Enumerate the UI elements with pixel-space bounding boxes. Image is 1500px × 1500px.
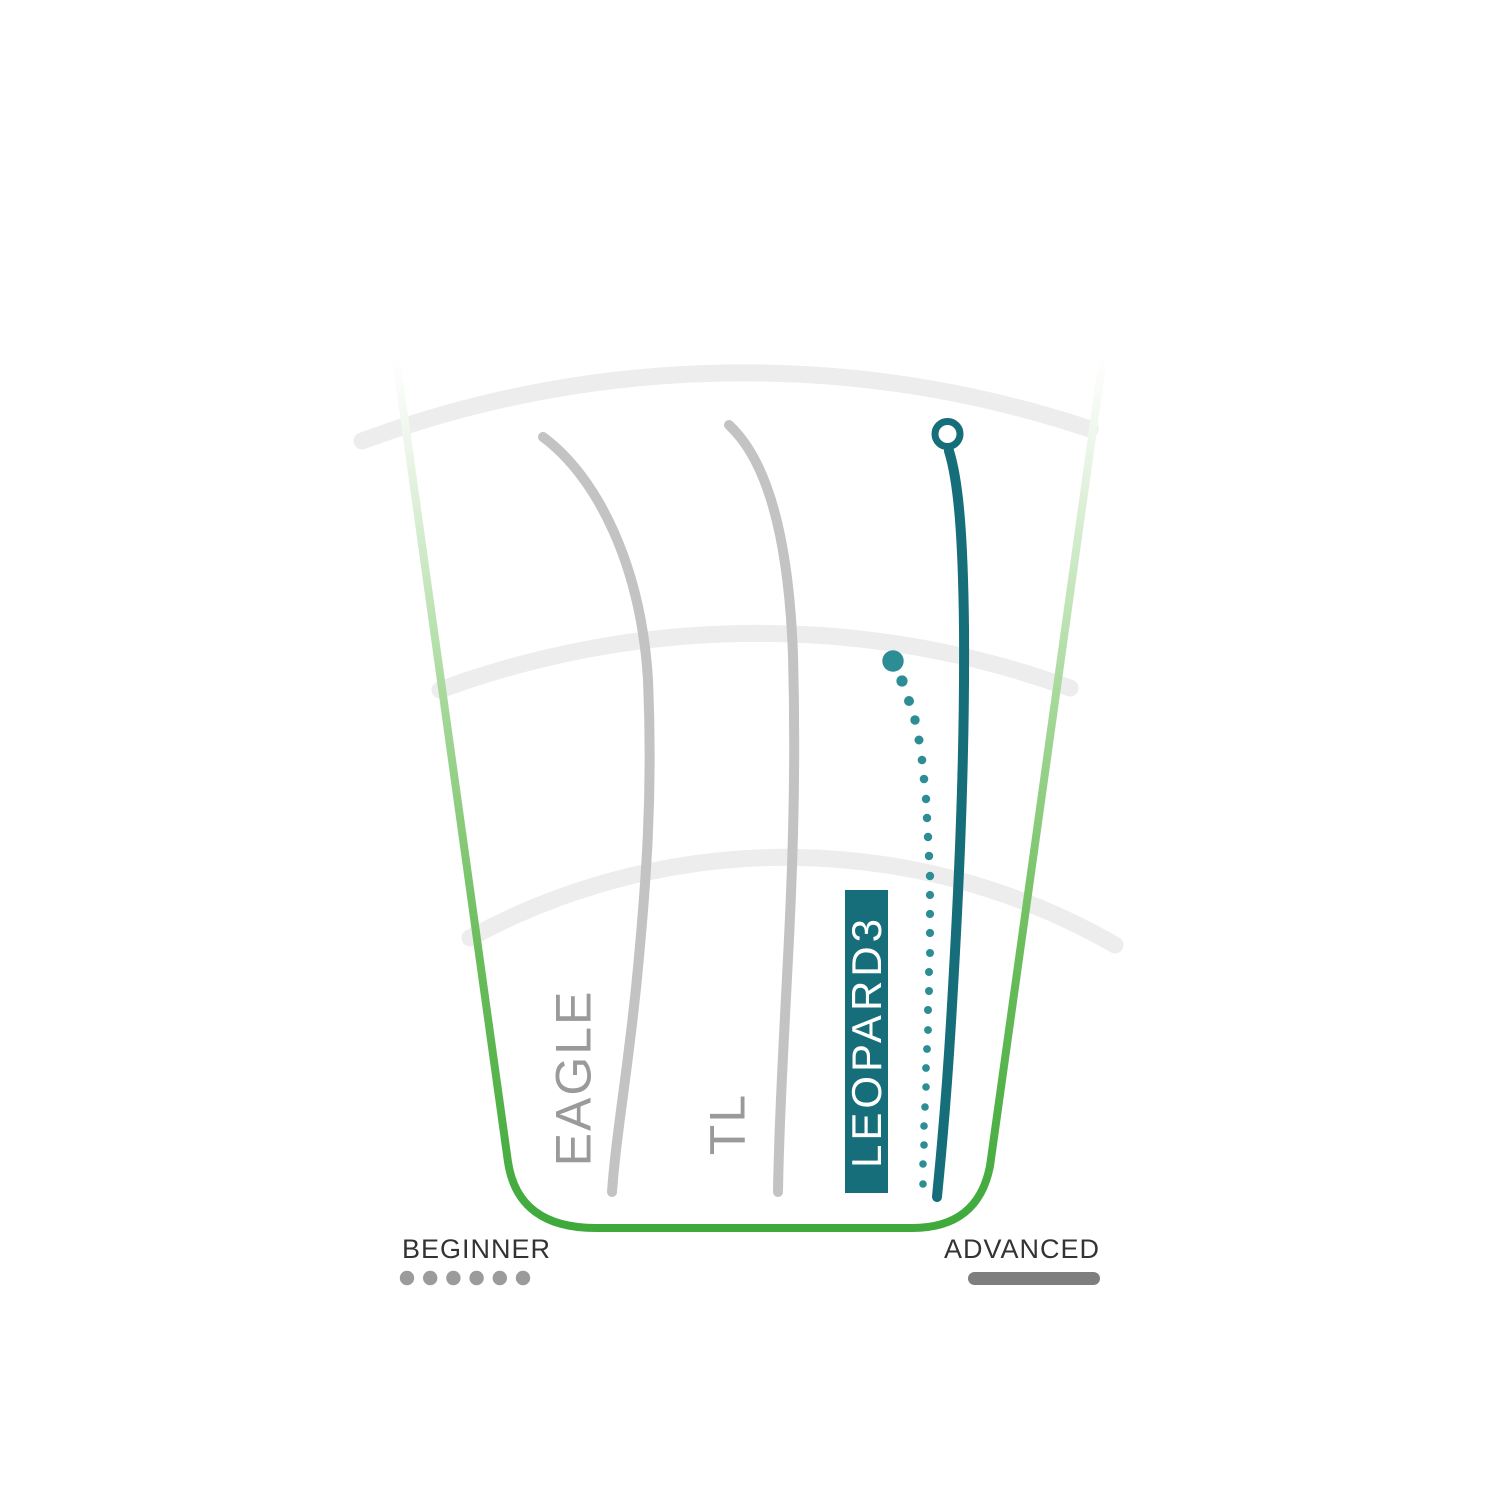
dotted-path-dot (882, 650, 903, 671)
dotted-path-dot (926, 891, 934, 899)
dotted-path-dot (918, 756, 927, 765)
flight-chart-canvas: EAGLETLLEOPARD3 BEGINNER ADVANCED (0, 0, 1500, 1500)
beginner-label: BEGINNER (402, 1234, 551, 1264)
dotted-path-dot (923, 814, 931, 822)
flight-path-leopard3: LEOPARD3 (843, 422, 964, 1198)
flight-path-eagle: EAGLE (543, 437, 650, 1192)
flight-line-label: TL (700, 1093, 756, 1155)
dotted-path-dot (922, 1064, 930, 1072)
dotted-path-dot (921, 1103, 929, 1111)
beginner-skill-dot (446, 1271, 460, 1285)
landing-marker-circle (935, 422, 960, 447)
beginner-skill-dot (423, 1271, 437, 1285)
advanced-label: ADVANCED (944, 1234, 1100, 1264)
dotted-path-dot (920, 1122, 928, 1130)
dotted-path-dot (922, 795, 930, 803)
beginner-skill-dot (493, 1271, 507, 1285)
dotted-path-dot (924, 1006, 932, 1014)
dotted-path-dot (920, 1141, 928, 1149)
dotted-path-dot (920, 775, 929, 784)
dotted-path-dot (926, 872, 934, 880)
beginner-skill-dot (469, 1271, 483, 1285)
leopard3-label: LEOPARD3 (843, 915, 890, 1168)
dotted-path-dot (915, 736, 924, 745)
dotted-path-dot (923, 1045, 931, 1053)
distance-arc (362, 373, 1090, 441)
dotted-path-dot (919, 1180, 927, 1188)
flight-paths: EAGLETLLEOPARD3 (543, 422, 964, 1198)
dotted-path-dot (924, 833, 932, 841)
beginner-skill-dots (400, 1271, 530, 1285)
flight-chart-svg: EAGLETLLEOPARD3 BEGINNER ADVANCED (0, 0, 1500, 1500)
distance-arcs (362, 373, 1115, 945)
flight-path-tl: TL (700, 425, 795, 1192)
dotted-path-dot (925, 987, 933, 995)
beginner-skill-dot (516, 1271, 530, 1285)
dotted-path-dot (926, 910, 934, 918)
beginner-skill-dot (400, 1271, 414, 1285)
dotted-path-dot (910, 715, 919, 724)
leopard3-flight-line (937, 451, 964, 1197)
flight-line-label: EAGLE (546, 990, 602, 1167)
flight-line (729, 425, 794, 1192)
dotted-path-dot (926, 949, 934, 957)
dotted-path-dot (904, 696, 914, 706)
distance-arc (440, 633, 1070, 690)
skill-level-legend: BEGINNER ADVANCED (400, 1234, 1100, 1285)
dotted-path-dot (922, 1083, 930, 1091)
advanced-skill-bar (968, 1272, 1100, 1285)
dotted-path-dot (925, 852, 933, 860)
dotted-path-dot (896, 675, 907, 686)
dotted-path-dot (924, 1026, 932, 1034)
dotted-path-dot (925, 968, 933, 976)
dotted-path-dot (926, 929, 934, 937)
dotted-path-dot (919, 1160, 927, 1168)
